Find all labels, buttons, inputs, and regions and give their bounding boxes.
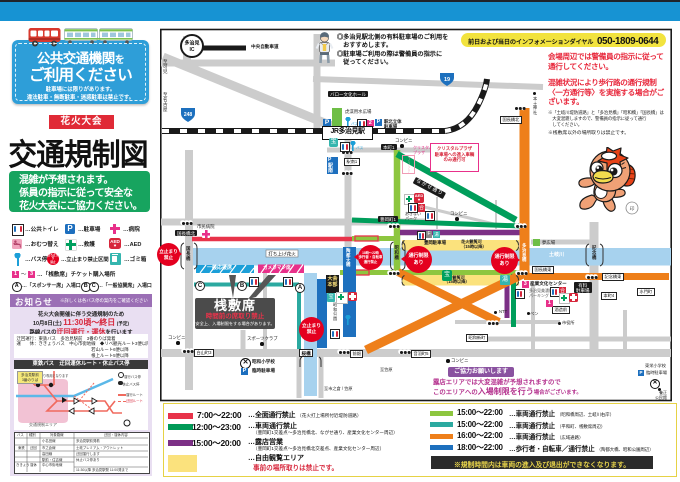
svg-text:市之倉線: 市之倉線 [42, 445, 56, 450]
svg-text:ききょう: ききょう [16, 462, 30, 467]
svg-text:IC: IC [190, 47, 195, 53]
svg-text:迂回: 迂回 [30, 445, 37, 450]
svg-text:印: 印 [629, 206, 634, 213]
svg-text:バス: バス [17, 432, 24, 437]
svg-text:交通規制エリア: 交通規制エリア [29, 421, 57, 427]
svg-text:迂回運行します: 迂回運行します [76, 451, 100, 456]
svg-text:多治見駅前発着: 多治見駅前発着 [76, 438, 100, 443]
svg-text:対象路線: 対象路線 [50, 432, 64, 437]
svg-text:東鉄: 東鉄 [18, 445, 25, 450]
svg-text:土岐プレミアム・アウトレット: 土岐プレミアム・アウトレット [76, 445, 123, 450]
svg-text:多治見: 多治見 [184, 40, 199, 47]
svg-text:248: 248 [184, 112, 193, 118]
svg-text:運休: 運休 [30, 462, 37, 467]
svg-text:19: 19 [444, 77, 450, 83]
svg-text:駅前・住吉線: 駅前・住吉線 [42, 457, 63, 462]
svg-text:中心市街地線: 中心市街地線 [42, 462, 63, 467]
svg-text:打ち上げ花火: 打ち上げ花火 [268, 251, 296, 258]
svg-text:小名田線: 小名田線 [42, 438, 56, 443]
svg-text:迂回・運休内容: 迂回・運休内容 [104, 432, 128, 437]
svg-text:高田線: 高田線 [42, 451, 53, 456]
svg-text:11:30以降 多治見駅発 11:00発まで: 11:30以降 多治見駅発 11:00発まで [76, 467, 129, 472]
svg-text:種別: 種別 [29, 432, 36, 437]
svg-text:休止バス停あり: 休止バス停あり [76, 457, 100, 462]
